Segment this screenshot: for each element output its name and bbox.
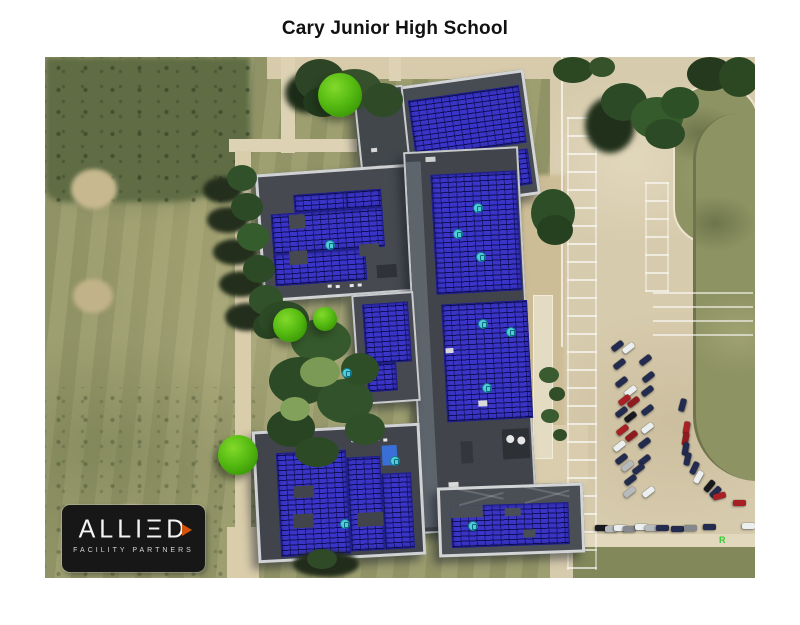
roof-unit [336,285,340,288]
roof-notch [523,529,535,537]
aerial-photo: R ALLIΞD FACILITY PARTNERS [45,57,755,578]
roof-unit [328,284,332,287]
tree-cluster [363,83,403,117]
roof-marker-icon [453,229,463,239]
tree-cluster [307,549,337,569]
tree-marker [273,308,307,342]
roof-unit [460,441,473,464]
roof-unit [383,438,387,441]
roof-unit [358,283,362,286]
allied-logo-arrow-icon [182,524,192,536]
parked-car [733,500,746,506]
roof-notch [289,250,308,265]
allied-logo: ALLIΞD FACILITY PARTNERS [62,505,205,572]
roof-marker-icon [506,327,516,337]
roof-unit [478,400,487,406]
tree-cluster [227,165,257,191]
roof-marker-icon [482,383,492,393]
solar-panel-array [273,248,367,286]
tree-cluster [231,193,263,221]
ground-walk-flare [227,527,259,578]
building-roof-west-classroom-block [255,164,419,303]
tree-cluster [661,87,699,119]
tree-cluster [295,437,339,467]
roof-marker-icon [342,368,352,378]
solar-panel-array [381,472,415,549]
roof-unit [445,348,453,353]
ground-wing-walk [389,57,401,81]
roof-unit [376,264,397,278]
parked-car [671,526,684,532]
building-roof-central-spine [403,146,538,533]
tree-cluster [237,223,269,251]
tree-cluster [549,387,565,401]
tree-cluster [589,57,615,77]
roof-marker-icon [325,240,335,250]
pavement-mark: R [719,535,726,545]
tree-cluster [243,255,275,283]
tree-marker [313,307,337,331]
roof-notch [505,508,521,517]
roof-marker-icon [476,252,486,262]
parked-car [656,525,669,531]
roof-marker-icon [468,521,478,531]
roof-notch [294,485,315,498]
ground-dirt-patch [71,169,117,209]
roof-notch [359,243,380,256]
parked-car [684,525,697,531]
roof-unit [371,148,377,153]
tree-cluster [645,119,685,149]
roof-marker-icon [340,519,350,529]
parking-stall-lines [645,182,669,292]
roof-unit [425,157,435,163]
building-roof-south-wing [437,482,585,557]
parking-stall-lines [653,292,753,348]
roof-notch [289,214,306,229]
tree-cluster [300,357,340,387]
roof-notch [357,512,384,527]
roof-marker-icon [390,456,400,466]
tree-cluster [345,413,385,445]
tree-cluster [280,397,310,421]
roof-notch [293,513,314,528]
roof-unit [350,284,354,287]
tree-cluster [537,215,573,245]
parked-car [742,523,755,529]
tree-cluster [553,57,593,83]
tree-cluster [719,57,755,97]
page-title: Cary Junior High School [0,18,790,40]
ground-dirt-patch [73,279,113,313]
tree-cluster [541,409,559,423]
tree-cluster [539,367,559,383]
ground-bottom-sidewalk [577,534,755,547]
roof-marker-icon [473,203,483,213]
tree-cluster [553,429,567,441]
ground-bottom-grass [573,547,755,578]
tree-marker [218,435,258,475]
roof-marker-icon [478,319,488,329]
solar-panel-array [346,456,385,552]
roof-unit [502,428,531,459]
page: Cary Junior High School R ALLIΞD FACILIT… [0,0,800,625]
parked-car [703,524,716,530]
tree-marker [318,73,362,117]
solar-panel-array [430,170,522,294]
roof-notch [450,505,482,518]
allied-logo-subtitle: FACILITY PARTNERS [62,547,205,554]
